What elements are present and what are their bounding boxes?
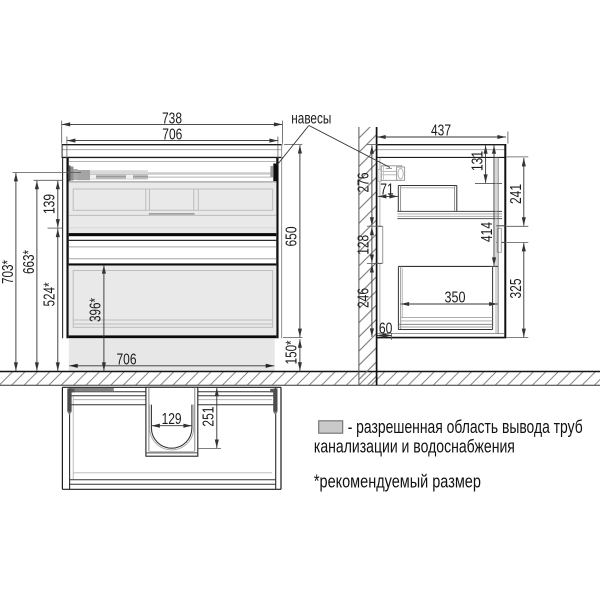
svg-text:663*: 663* xyxy=(21,250,38,274)
svg-text:241: 241 xyxy=(508,184,525,204)
svg-text:*рекомендуемый размер: *рекомендуемый размер xyxy=(314,471,481,491)
svg-text:276: 276 xyxy=(356,173,373,193)
svg-text:325: 325 xyxy=(508,279,525,299)
svg-text:- разрешенная область вывода т: - разрешенная область вывода труб xyxy=(348,417,583,437)
svg-text:71: 71 xyxy=(380,182,394,199)
svg-text:414: 414 xyxy=(479,222,496,242)
svg-text:524*: 524* xyxy=(42,283,59,307)
svg-text:706: 706 xyxy=(162,127,182,144)
svg-text:706: 706 xyxy=(117,351,137,368)
svg-text:128: 128 xyxy=(356,235,373,255)
svg-text:150*: 150* xyxy=(283,340,300,364)
svg-text:437: 437 xyxy=(431,123,451,140)
svg-text:738: 738 xyxy=(162,110,182,127)
svg-text:246: 246 xyxy=(356,288,373,308)
svg-text:навесы: навесы xyxy=(291,110,331,127)
svg-text:129: 129 xyxy=(162,411,182,428)
svg-text:703*: 703* xyxy=(0,260,17,284)
svg-text:60: 60 xyxy=(379,320,393,337)
svg-text:131: 131 xyxy=(469,151,486,171)
svg-text:251: 251 xyxy=(201,407,218,427)
svg-text:650: 650 xyxy=(283,226,300,246)
svg-text:396*: 396* xyxy=(88,298,105,322)
svg-text:139: 139 xyxy=(42,194,59,214)
svg-text:канализации и водоснабжения: канализации и водоснабжения xyxy=(314,437,515,457)
svg-text:350: 350 xyxy=(445,289,466,306)
